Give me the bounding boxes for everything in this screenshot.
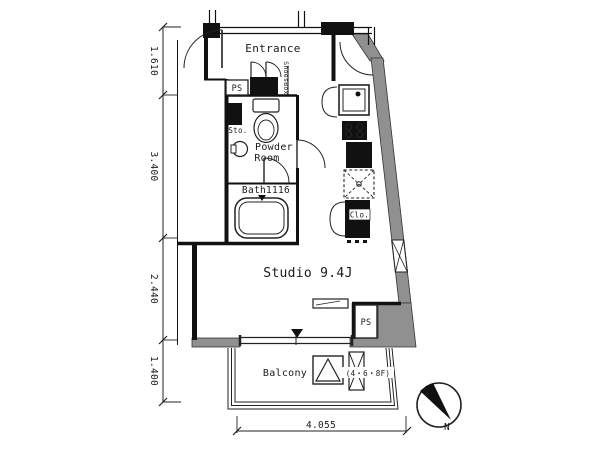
evacuation-hatch-icon: [313, 356, 343, 384]
label-shoes-box: ShoesBox: [282, 61, 290, 95]
wall-bottom-left: [192, 338, 240, 347]
storage-icon: [226, 103, 242, 125]
dim-bottom: 4.055: [306, 420, 336, 431]
sink-icon: [231, 142, 248, 157]
powder-door-icon: [297, 140, 325, 168]
dim-left-2: 3.400: [148, 151, 159, 181]
label-powder-2: Room: [254, 153, 279, 164]
window-icon: [240, 329, 352, 346]
stove-icon: [342, 121, 367, 140]
floor-plan: Entrance ShoesBox PS Sto. Powder Room Ba…: [0, 0, 600, 450]
closet-icon: [330, 200, 370, 243]
label-bath: Bath1116: [242, 185, 290, 196]
dim-left-1: 1.610: [148, 46, 159, 76]
counter-icon: [346, 142, 372, 168]
label-storage: Sto.: [228, 126, 247, 135]
floor-plan-drawing: Entrance ShoesBox PS Sto. Powder Room Ba…: [0, 0, 600, 450]
label-powder-1: Powder: [255, 142, 293, 153]
dim-left-3: 2.440: [148, 274, 159, 304]
label-closet: Clo.: [350, 211, 369, 220]
label-ps-bottom: PS: [361, 318, 372, 328]
kitchen-sink-icon: [344, 170, 374, 198]
wall-jamb: [321, 22, 354, 35]
label-north: N: [444, 422, 450, 433]
label-entrance: Entrance: [245, 42, 300, 55]
window-center-marker: [291, 329, 303, 338]
shelf-icon: [313, 299, 348, 308]
label-balcony: Balcony: [263, 368, 307, 379]
label-floor-note: (4・6・8F): [346, 369, 391, 378]
label-ps-top: PS: [232, 84, 243, 94]
toilet-icon: [253, 99, 279, 143]
north-arrow-icon: [417, 383, 461, 427]
bathtub-icon: [235, 195, 288, 238]
dimension-labels: 1.610 3.400 2.440 1.400 4.055: [148, 46, 336, 431]
dim-left-4: 1.400: [148, 356, 159, 386]
shoes-box-icon: [250, 62, 281, 95]
washing-machine-icon: [322, 85, 369, 117]
label-studio: Studio 9.4J: [263, 266, 352, 281]
window-icon: [392, 240, 408, 272]
